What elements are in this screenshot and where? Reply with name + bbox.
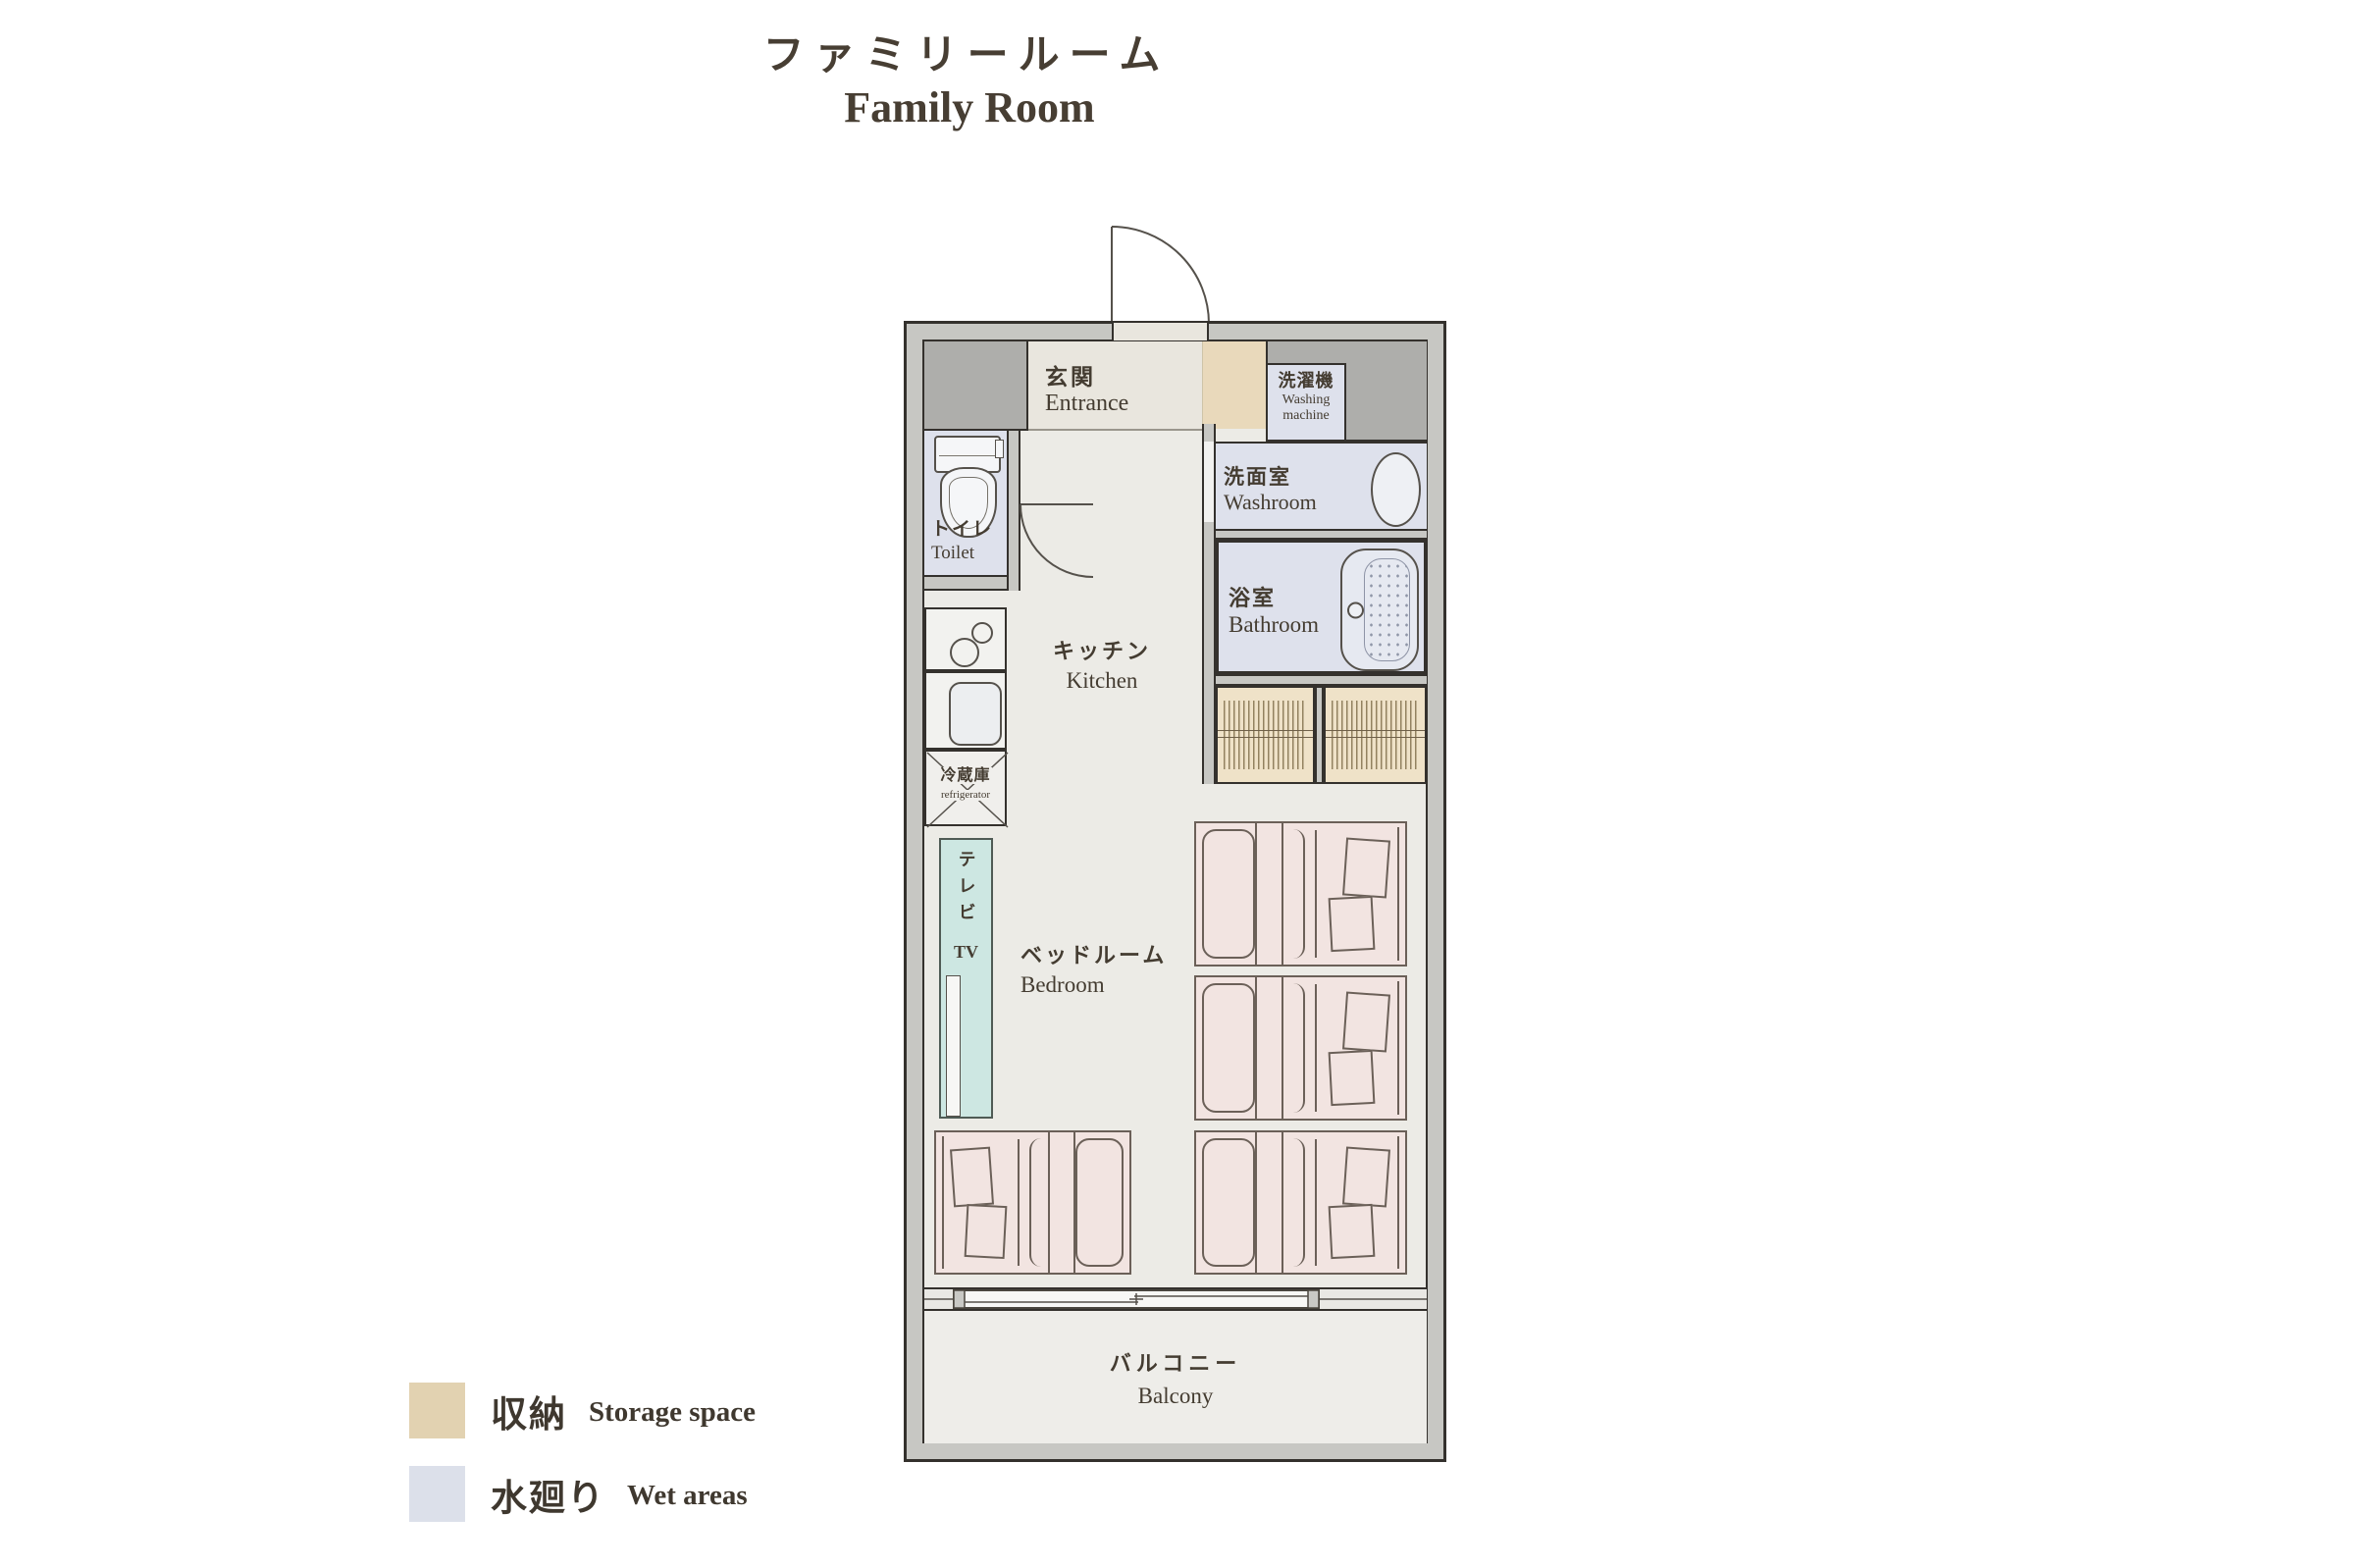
bed-blanket-fold <box>1255 977 1284 1119</box>
storage-closet-1 <box>1216 686 1315 784</box>
bed-pillow <box>964 1204 1007 1259</box>
legend-wet-en: Wet areas <box>627 1480 748 1512</box>
washroom-door-opening <box>1204 442 1214 522</box>
corridor-door-swing-arc <box>1019 502 1097 581</box>
washroom-label-jp: 洗面室 <box>1224 465 1317 490</box>
bathroom-label: 浴室 Bathroom <box>1229 586 1319 639</box>
bathtub-drain <box>1347 601 1364 618</box>
room-washroom: 洗面室 Washroom <box>1216 442 1427 529</box>
bed-blanket-edge <box>1029 1138 1049 1268</box>
washroom-label-en: Washroom <box>1224 490 1317 515</box>
entrance-door-swing-arc <box>1020 218 1276 328</box>
refrigerator-label: 冷蔵庫 refrigerator <box>926 768 1005 802</box>
toilet-tank-lid-line <box>939 455 996 456</box>
washroom-label: 洗面室 Washroom <box>1224 465 1317 516</box>
bed-pillow <box>1329 1204 1376 1260</box>
toilet-label: トイレ Toilet <box>931 518 993 565</box>
wall-bathroom-closet <box>1202 674 1427 686</box>
legend-storage-swatch <box>409 1383 465 1438</box>
legend-wet-row: 水廻り Wet areas <box>409 1466 748 1522</box>
stove-burner-large <box>950 638 979 667</box>
wall-toilet-bottom <box>924 575 1007 591</box>
washing-machine-label-en2: machine <box>1268 408 1344 424</box>
bathroom-label-en: Bathroom <box>1229 611 1319 639</box>
bed-1 <box>1194 821 1407 967</box>
bed-pillow <box>1342 837 1390 898</box>
toilet-label-jp: トイレ <box>931 518 993 542</box>
legend-wet-jp: 水廻り <box>491 1468 605 1521</box>
balcony-sliding-window <box>924 1287 1427 1311</box>
refrigerator-label-jp: 冷蔵庫 <box>939 767 991 784</box>
bed-sheet-line <box>1018 1139 1020 1266</box>
bedroom-label-en: Bedroom <box>1020 970 1167 1000</box>
tv-label-en: TV <box>941 942 991 963</box>
closet-rod <box>1218 730 1313 738</box>
page-title-japanese: ファミリールーム <box>763 22 1171 81</box>
bed-headboard <box>942 1136 944 1268</box>
balcony-label-en: Balcony <box>924 1380 1427 1412</box>
bed-blanket-edge <box>1283 1138 1304 1268</box>
sliding-window-glazing <box>924 1289 1427 1309</box>
kitchen-stove <box>924 607 1007 671</box>
kitchen-sink <box>924 671 1007 750</box>
toilet-label-en: Toilet <box>931 542 993 565</box>
floor-interior: 玄関 Entrance 洗濯機 Washing machine 洗面室 Wash… <box>922 340 1428 1443</box>
bed-blanket-edge <box>1283 983 1304 1113</box>
legend-storage-row: 収納 Storage space <box>409 1383 756 1438</box>
room-toilet: トイレ Toilet <box>924 431 1007 575</box>
bathtub <box>1340 549 1419 671</box>
bed-2 <box>1194 975 1407 1121</box>
legend-storage-jp: 収納 <box>491 1385 567 1437</box>
bed-duvet <box>1202 829 1254 959</box>
bed-sheet-line <box>1315 1139 1317 1266</box>
washing-machine-label-en1: Washing <box>1268 392 1344 408</box>
kitchen-label-jp: キッチン <box>1028 638 1176 666</box>
bed-duvet <box>1075 1138 1124 1268</box>
tv-screen <box>946 975 961 1117</box>
entrance-label-jp: 玄関 <box>1045 365 1128 391</box>
storage-closet-2 <box>1324 686 1427 784</box>
wall-closet-divider <box>1315 686 1324 784</box>
bed-headboard <box>1397 827 1399 960</box>
tv-unit: テレビ TV <box>939 838 993 1119</box>
entrance-label: 玄関 Entrance <box>1045 365 1128 418</box>
storage-space-column <box>1202 341 1266 429</box>
bed-sheet-line <box>1315 984 1317 1112</box>
bathtub-base-texture <box>1364 558 1410 661</box>
bed-duvet <box>1202 1138 1254 1268</box>
bed-3 <box>1194 1130 1407 1275</box>
bed-blanket-fold <box>1255 823 1284 965</box>
entrance-door-opening <box>1112 323 1209 340</box>
bathroom-label-jp: 浴室 <box>1229 586 1319 611</box>
wall-block-top-left <box>924 341 1028 431</box>
washing-machine-area: 洗濯機 Washing machine <box>1266 363 1346 442</box>
refrigerator-label-en: refrigerator <box>941 790 990 801</box>
bedroom-label-jp: ベッドルーム <box>1020 942 1167 970</box>
bed-blanket-fold <box>1255 1132 1284 1273</box>
room-balcony: バルコニー Balcony <box>924 1311 1427 1443</box>
bed-pillow <box>1342 991 1390 1052</box>
tv-label-jp: テレビ <box>954 850 979 929</box>
bed-pillow <box>1329 896 1376 952</box>
bed-4 <box>934 1130 1131 1275</box>
bed-sheet-line <box>1315 830 1317 958</box>
bed-headboard <box>1397 981 1399 1114</box>
kitchen-label: キッチン Kitchen <box>1028 638 1176 695</box>
washing-machine-label-jp: 洗濯機 <box>1268 367 1344 392</box>
stove-burner-small <box>971 622 993 644</box>
bed-headboard <box>1397 1136 1399 1268</box>
balcony-label: バルコニー Balcony <box>924 1348 1427 1412</box>
wall-washroom-bathroom <box>1202 529 1427 540</box>
bed-blanket-fold <box>1048 1132 1075 1273</box>
kitchen-sink-basin <box>949 682 1002 746</box>
entrance-label-en: Entrance <box>1045 391 1128 418</box>
bedroom-label: ベッドルーム Bedroom <box>1020 942 1167 999</box>
page-title-english: Family Room <box>844 82 1094 132</box>
room-entrance: 玄関 Entrance <box>1028 341 1202 431</box>
balcony-label-jp: バルコニー <box>924 1348 1427 1380</box>
legend-wet-swatch <box>409 1466 465 1522</box>
closet-rod <box>1326 730 1425 738</box>
toilet-flush-handle <box>995 440 1004 458</box>
legend-storage-en: Storage space <box>589 1396 756 1429</box>
bed-pillow <box>950 1146 994 1206</box>
bed-pillow <box>1329 1050 1376 1106</box>
bed-blanket-edge <box>1283 829 1304 959</box>
kitchen-label-en: Kitchen <box>1028 666 1176 696</box>
room-bathroom: 浴室 Bathroom <box>1216 540 1427 674</box>
refrigerator: 冷蔵庫 refrigerator <box>924 750 1007 826</box>
bed-pillow <box>1342 1146 1390 1207</box>
bed-duvet <box>1202 983 1254 1113</box>
washroom-sink <box>1371 452 1421 527</box>
floor-plan: 玄関 Entrance 洗濯機 Washing machine 洗面室 Wash… <box>904 321 1446 1462</box>
floor-plan-page: ファミリールーム Family Room 玄関 Entrance 洗濯機 Was… <box>0 0 2354 1568</box>
